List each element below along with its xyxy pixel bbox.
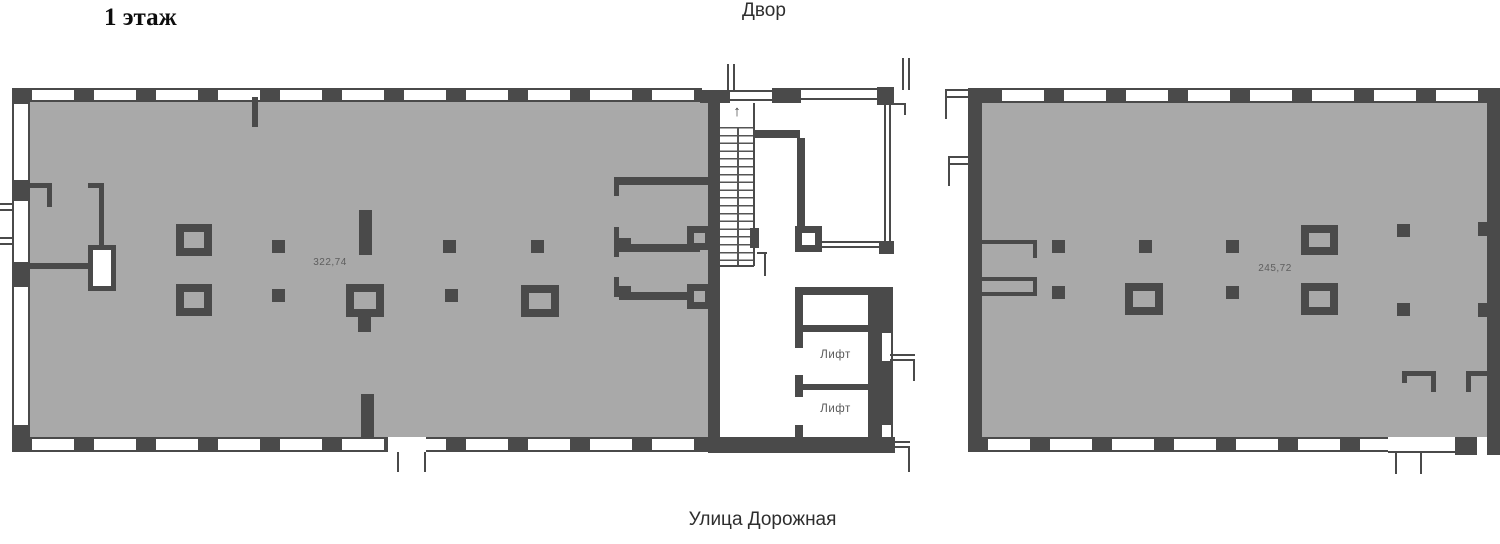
wall-line (0, 209, 14, 211)
wall-line (945, 89, 968, 91)
column (1301, 225, 1338, 255)
partition-wall (619, 292, 693, 300)
partition-wall (982, 240, 1037, 244)
column (521, 285, 559, 317)
wall-line (948, 156, 968, 158)
door-swing-line (1420, 452, 1422, 474)
partition-wall (47, 183, 52, 207)
wall-line (0, 243, 14, 245)
window-segment (730, 90, 772, 101)
wall-segment (12, 425, 30, 452)
right-unit-north-wall (982, 88, 1487, 103)
partition-wall (99, 183, 104, 245)
wall-line (948, 163, 968, 165)
left-unit-floor[interactable] (18, 100, 710, 437)
floor-title: 1 этаж (104, 4, 177, 32)
wall-line (908, 58, 910, 90)
elevator-wall (803, 384, 871, 390)
wall-line (904, 104, 906, 115)
wall-line (0, 203, 14, 205)
wall-line (1388, 451, 1458, 453)
partition-wall (982, 292, 1037, 296)
street-label: Улица Дорожная (660, 509, 865, 531)
shaft-opening (795, 226, 822, 252)
column (1226, 240, 1239, 253)
wall-line (945, 96, 968, 98)
window-segment (12, 287, 30, 425)
partition-wall (1431, 371, 1436, 392)
wall-line (908, 446, 910, 472)
wall-segment (750, 228, 759, 248)
partition-wall (982, 277, 1037, 281)
column (1226, 286, 1239, 299)
wall-segment (12, 88, 30, 104)
wall-line (945, 89, 947, 119)
partition-wall (614, 177, 710, 185)
floor-plan-canvas: 1 этаж Двор Улица Дорожная 322,74 (0, 0, 1500, 544)
stair-stringer (737, 127, 739, 266)
wall-line (902, 58, 904, 90)
wall-line (822, 241, 884, 243)
left-unit-south-entrance (388, 437, 426, 452)
wall-line (0, 237, 14, 239)
wall-segment (12, 262, 30, 287)
column (531, 240, 544, 253)
wall-line (913, 359, 915, 381)
elevator-wall (795, 375, 803, 397)
left-unit-north-wall (12, 88, 702, 102)
window-segment (801, 88, 878, 100)
column (176, 224, 212, 256)
wall-line (733, 64, 735, 90)
wall-line (948, 156, 950, 186)
courtyard-label: Двор (714, 0, 814, 22)
wall-line (720, 265, 754, 267)
column (1397, 303, 1410, 316)
wall-stub (361, 394, 374, 437)
wall-stub (359, 210, 372, 255)
wall-line (889, 103, 891, 243)
partition-wall (754, 130, 800, 138)
partition-wall (1033, 240, 1037, 258)
elevator-wall (795, 287, 803, 348)
column (1052, 240, 1065, 253)
wall-stub (252, 97, 258, 127)
wall-segment (700, 90, 730, 103)
elevator-wall (801, 325, 871, 332)
wall-segment (879, 241, 894, 254)
partition-wall (30, 263, 90, 269)
wall-line (764, 252, 766, 276)
wall-line (884, 103, 886, 243)
column (176, 284, 212, 316)
door-swing-line (1395, 452, 1397, 474)
core-west-wall (708, 100, 720, 452)
right-unit-area-label: 245,72 (1240, 263, 1310, 274)
column (272, 289, 285, 302)
partition-wall (1033, 277, 1037, 296)
partition-wall (614, 177, 619, 196)
column (1397, 224, 1410, 237)
wall-niche (882, 333, 891, 361)
door-swing-line (397, 452, 399, 472)
column (346, 284, 384, 317)
column (1301, 283, 1338, 315)
wall-line (727, 64, 729, 90)
right-unit-floor[interactable] (982, 103, 1487, 437)
column (443, 240, 456, 253)
right-unit-east-wall (1487, 88, 1500, 455)
wall-segment (1455, 437, 1477, 455)
left-unit-area-label: 322,74 (295, 257, 365, 268)
pilaster (1478, 222, 1487, 236)
wall-line (890, 354, 915, 356)
wall-line (822, 246, 884, 248)
staircase: ↑ (720, 103, 754, 266)
partition-wall (1402, 371, 1407, 383)
stair-up-arrow-icon: ↑ (733, 104, 741, 119)
core-south-wall (708, 437, 895, 453)
left-unit-south-wall (12, 437, 708, 452)
column (272, 240, 285, 253)
shaft-opening (88, 245, 116, 291)
wall-line (890, 359, 915, 361)
door-swing-line (424, 452, 426, 472)
column (1139, 240, 1152, 253)
elevator-1-label: Лифт (803, 349, 868, 361)
pilaster (1478, 303, 1487, 317)
column (1125, 283, 1163, 315)
wall-segment (772, 88, 801, 103)
column (1052, 286, 1065, 299)
window-segment (12, 201, 30, 262)
elevator-2-label: Лифт (803, 403, 868, 415)
column (445, 289, 458, 302)
partition-wall (797, 138, 805, 230)
wall-stub (358, 317, 371, 332)
right-unit-west-wall (968, 88, 982, 452)
partition-wall (1466, 371, 1471, 392)
wall-segment (12, 180, 30, 201)
right-unit-south-wall (968, 437, 1388, 452)
window-segment (12, 104, 30, 180)
